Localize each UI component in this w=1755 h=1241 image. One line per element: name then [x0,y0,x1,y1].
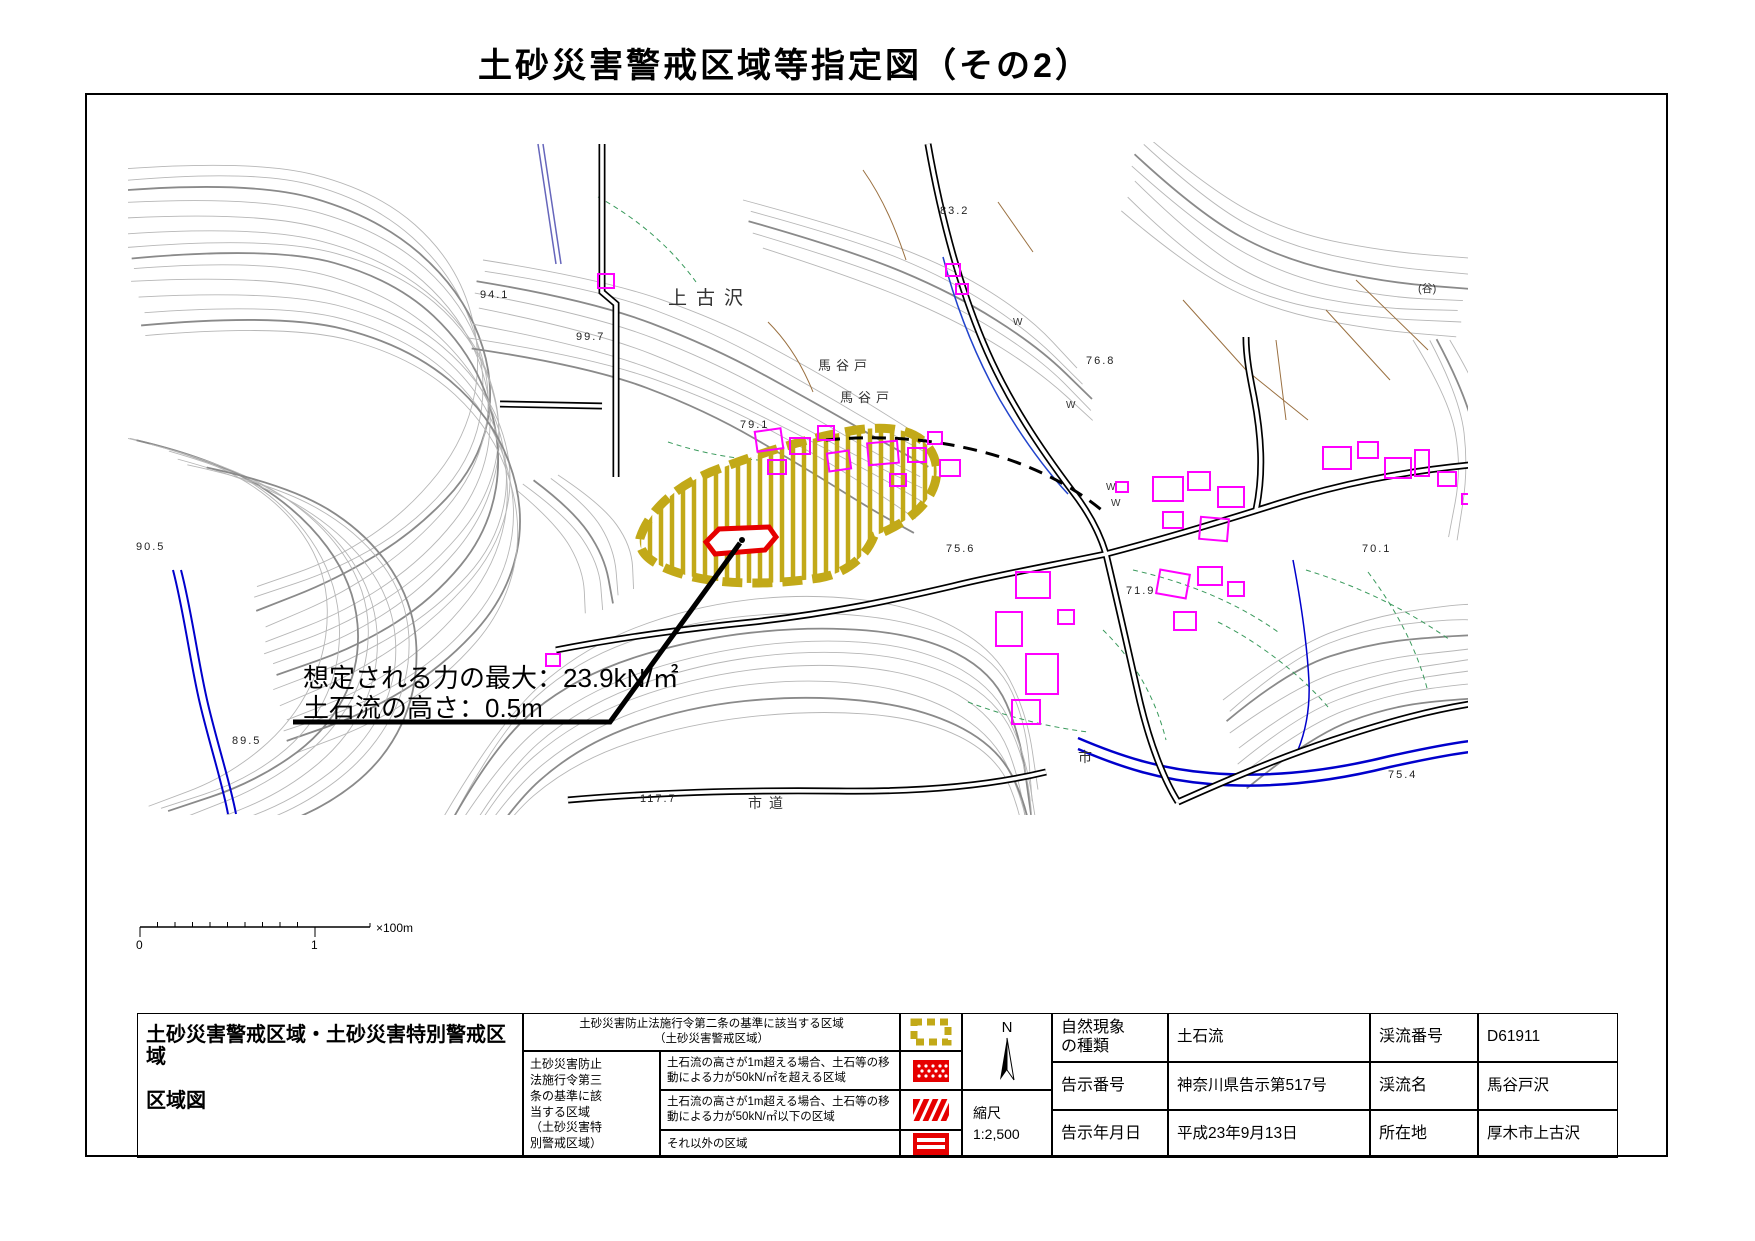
contour-line [150,444,369,815]
legend-symbol-special-under [900,1090,962,1130]
info-value-phenomenon: 土石流 [1168,1013,1370,1062]
info-value-notice-date: 平成23年9月13日 [1168,1110,1370,1158]
place-label: 市 [1078,749,1092,765]
place-label: 馬谷戸 [818,358,872,373]
info-label-stream-name: 渓流名 [1370,1062,1478,1110]
place-label: 上古沢 [668,287,752,309]
spot-elevation: 89.5 [232,735,261,747]
legend-symbol-other [900,1130,962,1158]
north-arrow-icon: N [963,1016,1051,1088]
legend-zone-c-desc: 土石流の高さが1m超える場合、土石等の移動による力が50kN/㎡以下の区域 [660,1090,900,1130]
place-label: (谷) [1418,282,1436,295]
other-zone-stripes-icon [908,1131,954,1157]
contour-line [445,712,1030,815]
contour-line [132,253,498,675]
contour-line [139,295,508,720]
legend-zone-d-desc: それ以外の区域 [660,1130,900,1158]
info-label-stream-number: 渓流番号 [1370,1013,1478,1062]
legend-info-table: 土砂災害警戒区域・土砂災害特別警戒区域 区域図 土砂災害防止法施行令第二条の基準… [137,1013,1618,1158]
spot-elevation: 90.5 [136,541,165,553]
spot-elevation: 117.7 [640,793,677,805]
map-sheet-title-cell: 土砂災害警戒区域・土砂災害特別警戒区域 区域図 [137,1013,523,1158]
info-label-notice-number: 告示番号 [1052,1062,1168,1110]
spot-elevation: 76.8 [1086,355,1115,367]
contour-line [518,491,585,613]
legend-zone-a-desc: 土砂災害防止法施行令第二条の基準に該当する区域 （土砂災害警戒区域） [523,1013,900,1051]
spot-elevation: 75.6 [946,543,975,555]
spot-elevation: 75.4 [1388,769,1417,781]
info-value-notice-number: 神奈川県告示第517号 [1168,1062,1370,1110]
info-value-location: 厚木市上古沢 [1478,1110,1618,1158]
contour-line [1132,166,1463,301]
special-zone-hatch-icon [908,1096,954,1124]
contour-line [137,440,358,811]
document-title: 土砂災害警戒区域等指定図（その2） [0,38,1570,87]
map-sheet-title-line1: 土砂災害警戒区域・土砂災害特別警戒区域 [146,1024,514,1068]
contour-line [743,200,1077,368]
contour-line [1135,154,1468,289]
map-sheet-title-line2: 区域図 [146,1090,514,1112]
info-value-stream-name: 馬谷戸沢 [1478,1062,1618,1110]
contour-line [1121,211,1456,337]
warning-zone-swatch-icon [908,1018,954,1046]
place-label: 市道 [748,795,790,811]
contour-line [1230,647,1468,733]
contour-line [558,475,634,589]
compass-cell: N [962,1013,1052,1090]
spot-elevation: 71.9 [1126,585,1155,597]
legend-symbol-warning-zone [900,1013,962,1051]
contour-line [1143,142,1468,258]
contour-line [1437,339,1468,545]
north-label: N [1002,1019,1013,1036]
utility-mark: W [1066,400,1076,411]
contour-line [128,435,327,806]
scale-cell: 縮尺 1:2,500 [962,1090,1052,1158]
utility-mark: W [1106,482,1116,493]
contour-line [207,467,417,815]
scale-bar: 0 1 ×100m [130,903,450,951]
contour-line [128,165,478,586]
scalebar-one: 1 [311,938,318,951]
parcel-lines-brown [768,170,1428,420]
contour-line [523,484,603,610]
spot-elevation: 99.7 [576,331,605,343]
contour-line [178,459,396,815]
info-label-phenomenon: 自然現象の種類 [1052,1013,1168,1062]
utility-mark: W [1013,317,1023,328]
legend-symbol-special-over [900,1051,962,1090]
utility-mark: W [1111,498,1121,509]
scale-value: 1:2,500 [973,1124,1020,1145]
spot-elevation: 70.1 [1362,543,1391,555]
spot-elevation: 79.1 [740,419,769,431]
contour-line [128,201,488,627]
place-label: 馬谷戸 [840,390,894,405]
scale-label: 縮尺 [973,1103,1020,1124]
scalebar-zero: 0 [136,938,143,951]
contour-line [128,231,499,654]
contour-line [169,451,378,815]
annotation-height: 土石流の高さ：0.5m [303,693,543,723]
contour-line [134,265,506,690]
spot-elevation: 83.2 [940,205,969,217]
contour-line [753,233,1091,411]
contour-line [1430,340,1466,540]
contour-line [128,187,490,611]
info-value-stream-number: D61911 [1478,1013,1618,1062]
page: 土砂災害警戒区域等指定図（その2） [0,0,1755,1241]
spot-elevation: 94.1 [480,289,509,301]
info-label-notice-date: 告示年月日 [1052,1110,1168,1158]
special-zone-red [706,527,776,554]
scalebar-unit: ×100m [376,921,413,935]
topo-map: 想定される力の最大：23.9kN/㎡ 土石流の高さ：0.5m 上古沢 馬谷戸 馬… [128,142,1468,815]
annotation-force: 想定される力の最大：23.9kN/㎡ [303,663,679,693]
legend-group-label: 土砂災害防止法施行令第三条の基準に該当する区域（土砂災害特別警戒区域） [523,1051,660,1158]
roads [500,144,1468,802]
special-zone-dots-icon [908,1057,954,1085]
info-label-location: 所在地 [1370,1110,1478,1158]
contour-line [763,248,1093,420]
legend-zone-b-desc: 土石流の高さが1m超える場合、土石等の移動による力が50kN/㎡を超える区域 [660,1051,900,1090]
